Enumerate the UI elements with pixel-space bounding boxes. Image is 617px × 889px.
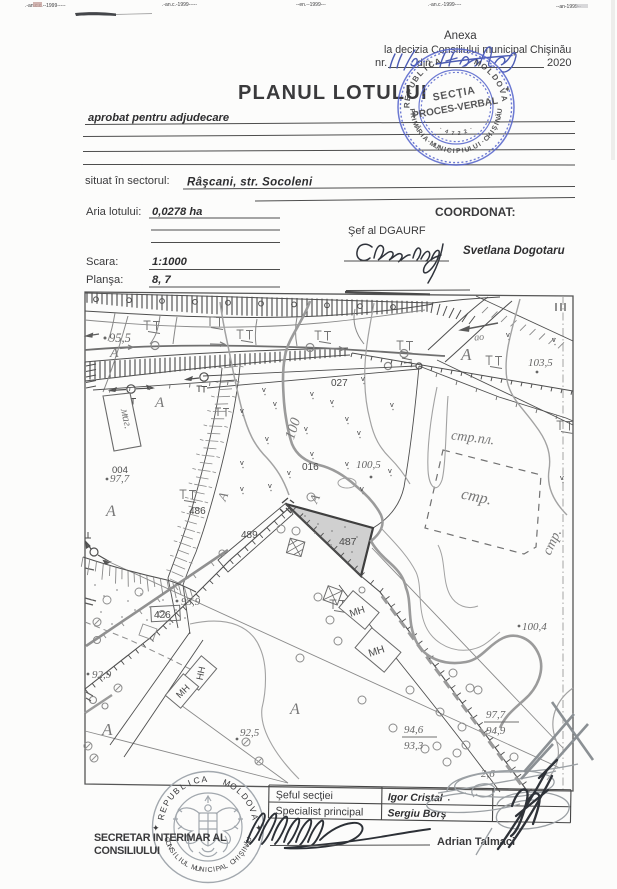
svg-text:2: 2 bbox=[457, 131, 461, 137]
svg-text:·: · bbox=[469, 126, 474, 132]
svg-text:U: U bbox=[497, 108, 504, 114]
svg-text:4: 4 bbox=[444, 129, 450, 136]
svg-text:C: C bbox=[446, 147, 452, 155]
svg-text:P: P bbox=[456, 148, 461, 155]
svg-text:A: A bbox=[499, 95, 509, 102]
svg-text:R: R bbox=[402, 102, 411, 108]
svg-text:✦: ✦ bbox=[504, 85, 511, 94]
svg-text:I: I bbox=[453, 148, 455, 155]
svg-text:7: 7 bbox=[451, 131, 455, 137]
svg-text:·: · bbox=[438, 126, 443, 132]
svg-text:2: 2 bbox=[463, 129, 468, 136]
